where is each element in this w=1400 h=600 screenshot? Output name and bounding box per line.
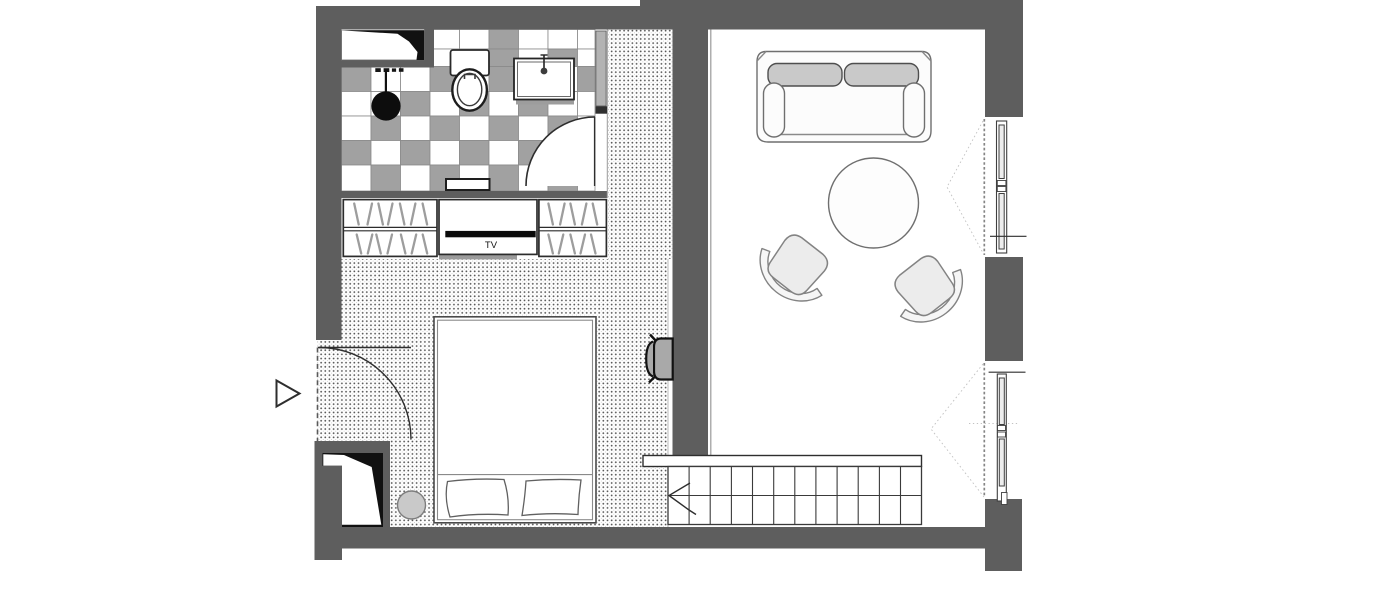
- svg-text:TV: TV: [485, 240, 498, 251]
